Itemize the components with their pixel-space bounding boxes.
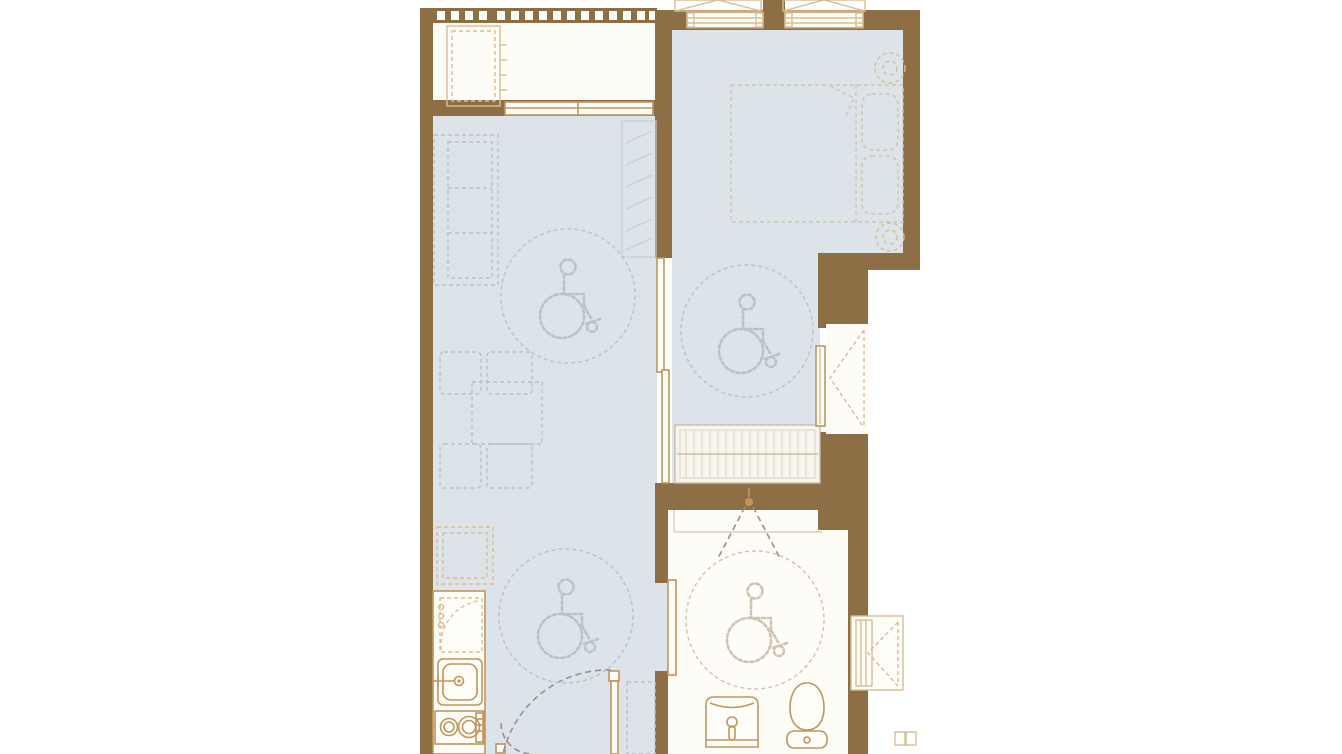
- floor-plan-canvas: [0, 0, 1342, 754]
- wall-bathroom-left-lower: [655, 671, 668, 754]
- wall-right-horizontal: [818, 253, 920, 270]
- wall-left: [420, 8, 433, 754]
- sliding-window: [505, 102, 653, 115]
- balcony-floor: [433, 20, 657, 104]
- wall-living-bedroom-divider: [655, 10, 672, 258]
- wall-shaft-lower: [818, 432, 868, 530]
- wall-right-bedroom: [903, 30, 920, 258]
- kitchen-sink: [433, 659, 482, 705]
- ac-ledge-2: [783, 0, 865, 11]
- wall-bathroom-left-upper: [655, 510, 668, 583]
- floor-plan: [0, 0, 1342, 754]
- ac-ledge-1: [675, 0, 761, 11]
- wall-bathroom-top: [655, 483, 850, 510]
- bedroom-window-1: [687, 12, 763, 28]
- two-burner-stove: [435, 711, 484, 744]
- door-leaf: [611, 681, 618, 754]
- wall-shaft-upper: [818, 270, 868, 328]
- wall-window-notch: [763, 0, 785, 30]
- bathroom-sliding-door: [668, 580, 676, 675]
- bedroom-window-2: [785, 12, 863, 28]
- bedroom-floor: [672, 28, 905, 258]
- bathroom-doorway-floor: [655, 583, 668, 671]
- wash-basin: [706, 697, 758, 747]
- wardrobe-with-hangers: [675, 425, 820, 483]
- door-jamb: [609, 671, 619, 681]
- sliding-door: [657, 258, 669, 483]
- service-shaft-upper: [816, 324, 868, 434]
- toilet: [787, 683, 827, 748]
